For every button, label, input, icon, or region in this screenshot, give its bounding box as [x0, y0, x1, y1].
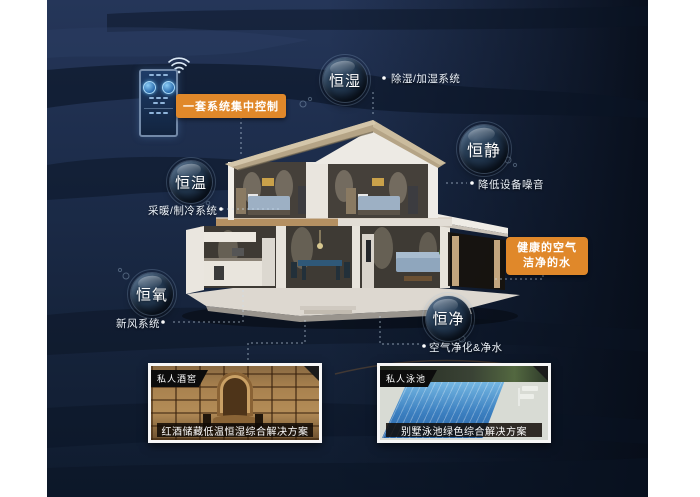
wine-card-caption: 红酒储藏低温恒湿综合解决方案 [157, 423, 313, 437]
smart-home-control-panel [139, 69, 178, 137]
benefit-callout: 健康的空气 洁净的水 [506, 237, 588, 275]
bubble-purity: 恒净 [426, 296, 471, 341]
wine-arch-cabinet [217, 372, 253, 416]
panel-label-bars [141, 97, 176, 99]
pool-photo: 私人泳池 别墅泳池绿色综合解决方案 [380, 366, 548, 440]
pool-card: 私人泳池 别墅泳池绿色综合解决方案 [377, 363, 551, 443]
bubble-temperature: 恒温 [170, 161, 212, 203]
wine-card-tag: 私人酒窖 [151, 370, 208, 387]
wine-cellar-photo: 私人酒窖 红酒储藏低温恒湿综合解决方案 [151, 366, 319, 440]
card-corner-fold [533, 366, 548, 381]
pool-card-tag: 私人泳池 [380, 370, 437, 387]
pool-ladder [518, 388, 520, 406]
lounge-chair [518, 394, 534, 399]
lounge-chair [522, 386, 538, 391]
pool-card-caption: 别墅泳池绿色综合解决方案 [386, 423, 542, 437]
panel-round-button [162, 81, 175, 94]
panel-label-bars [141, 102, 176, 104]
panel-divider [144, 108, 173, 109]
benefit-line2: 洁净的水 [508, 256, 586, 271]
wine-cellar-card: 私人酒窖 红酒储藏低温恒湿综合解决方案 [148, 363, 322, 443]
bubble-quiet: 恒静 [460, 125, 508, 173]
bubble-humidity: 恒湿 [323, 58, 367, 102]
card-corner-fold [304, 366, 319, 381]
note-purity: 空气净化&净水 [429, 340, 503, 355]
note-humidity: 除湿/加湿系统 [391, 71, 460, 86]
panel-title-bars [141, 74, 176, 76]
panel-footer-bars [141, 112, 176, 114]
bubble-oxygen: 恒氧 [131, 273, 173, 315]
benefit-line1: 健康的空气 [508, 241, 586, 256]
panel-round-button [143, 81, 156, 94]
control-callout: 一套系统集中控制 [176, 94, 286, 118]
note-temperature: 采暖/制冷系统 [148, 203, 217, 218]
note-quiet: 降低设备噪音 [478, 177, 544, 192]
note-oxygen: 新风系统 [116, 316, 160, 331]
